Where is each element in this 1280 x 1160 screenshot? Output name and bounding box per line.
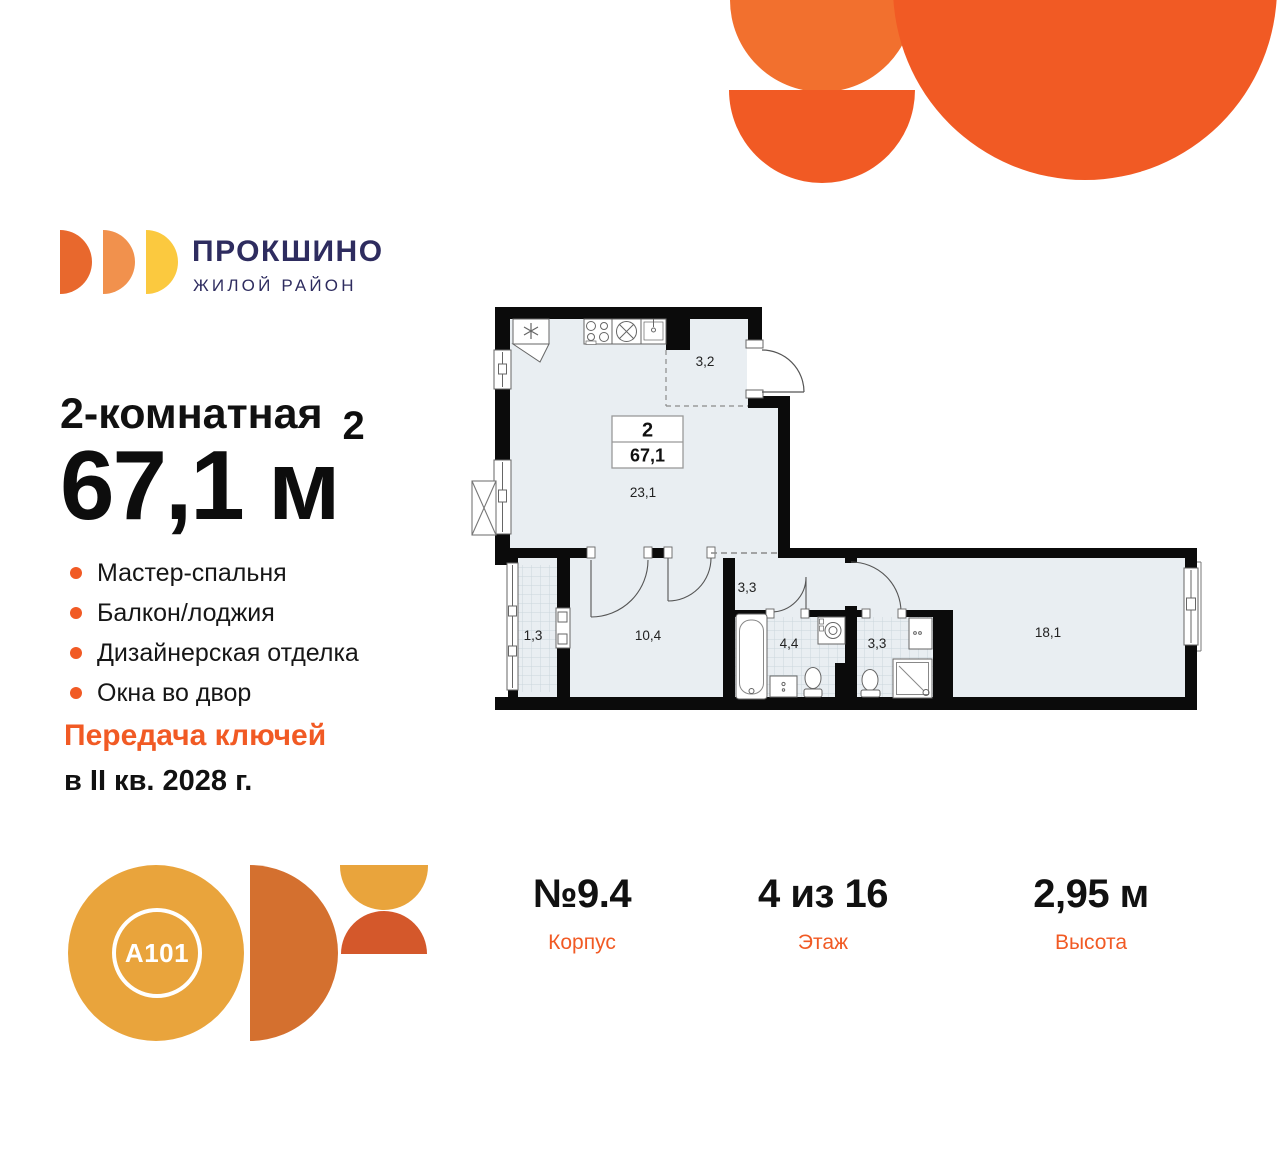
feature-list: Мастер-спальня Балкон/лоджия Дизайнерска… bbox=[70, 553, 359, 713]
a101-logo-text: A101 bbox=[112, 908, 202, 998]
room-label-entry-hall: 3,2 bbox=[696, 354, 715, 369]
room-label-master-bedroom: 18,1 bbox=[1035, 625, 1061, 640]
info-rooms-count: 2 bbox=[642, 420, 653, 442]
stat-height-value: 2,95 м bbox=[961, 872, 1221, 917]
brand-logo-mark-salmon bbox=[103, 230, 135, 294]
entrance-door bbox=[746, 340, 804, 398]
decor-circle-large bbox=[893, 0, 1277, 180]
brand-name: ПРОКШИНО bbox=[192, 235, 384, 269]
feature-item: Окна во двор bbox=[70, 673, 359, 713]
decor-semicircle-small-top bbox=[730, 0, 914, 92]
stat-building-value: №9.4 bbox=[452, 872, 712, 917]
floor-plan: 2 67,1 3,2 23,1 3,3 1,3 10,4 4,4 3,3 18,… bbox=[460, 295, 1220, 725]
feature-item: Балкон/лоджия bbox=[70, 593, 359, 633]
feature-item: Мастер-спальня bbox=[70, 553, 359, 593]
room-label-balcony: 1,3 bbox=[524, 628, 543, 643]
brand-logo-mark-yellow bbox=[146, 230, 178, 294]
room-label-corridor: 3,3 bbox=[738, 580, 757, 595]
bullet-dot-icon bbox=[70, 687, 82, 699]
stat-height: 2,95 м Высота bbox=[961, 872, 1221, 955]
plan-info-box: 2 67,1 bbox=[612, 416, 683, 468]
feature-label: Окна во двор bbox=[97, 679, 251, 708]
handover-title: Передача ключей bbox=[64, 719, 326, 753]
decor-semicircle-small-bottom bbox=[729, 90, 915, 183]
feature-item: Дизайнерская отделка bbox=[70, 633, 359, 673]
room-label-kitchen-living: 23,1 bbox=[630, 485, 656, 500]
bullet-dot-icon bbox=[70, 647, 82, 659]
room-label-shower-room: 3,3 bbox=[868, 636, 887, 651]
room-label-bedroom: 10,4 bbox=[635, 628, 662, 643]
area-value: 67,1 м bbox=[60, 430, 338, 540]
feature-label: Балкон/лоджия bbox=[97, 599, 275, 628]
info-total-area: 67,1 bbox=[630, 446, 665, 466]
stat-height-label: Высота bbox=[961, 931, 1221, 955]
real-estate-flyer: ПРОКШИНО ЖИЛОЙ РАЙОН 2-комнатная 67,1 м2… bbox=[0, 0, 1280, 1160]
apartment-area: 67,1 м2 bbox=[60, 436, 361, 534]
handover-date: в II кв. 2028 г. bbox=[64, 765, 252, 798]
stat-floor: 4 из 16 Этаж bbox=[693, 872, 953, 955]
brand-logo-mark-orange bbox=[60, 230, 92, 294]
stat-building-label: Корпус bbox=[452, 931, 712, 955]
feature-label: Дизайнерская отделка bbox=[97, 639, 359, 668]
stat-building: №9.4 Корпус bbox=[452, 872, 712, 955]
a101-logo-hourglass-top bbox=[340, 865, 428, 910]
stat-floor-label: Этаж bbox=[693, 931, 953, 955]
a101-logo-halfdisc bbox=[250, 865, 338, 1041]
stat-floor-value: 4 из 16 bbox=[693, 872, 953, 917]
area-superscript: 2 bbox=[342, 404, 364, 448]
room-label-bathroom: 4,4 bbox=[780, 636, 799, 651]
a101-logo-hourglass-bottom bbox=[341, 911, 427, 954]
bullet-dot-icon bbox=[70, 607, 82, 619]
bullet-dot-icon bbox=[70, 567, 82, 579]
feature-label: Мастер-спальня bbox=[97, 559, 287, 588]
brand-tagline: ЖИЛОЙ РАЙОН bbox=[193, 276, 357, 296]
plan-ac-box bbox=[472, 481, 496, 535]
